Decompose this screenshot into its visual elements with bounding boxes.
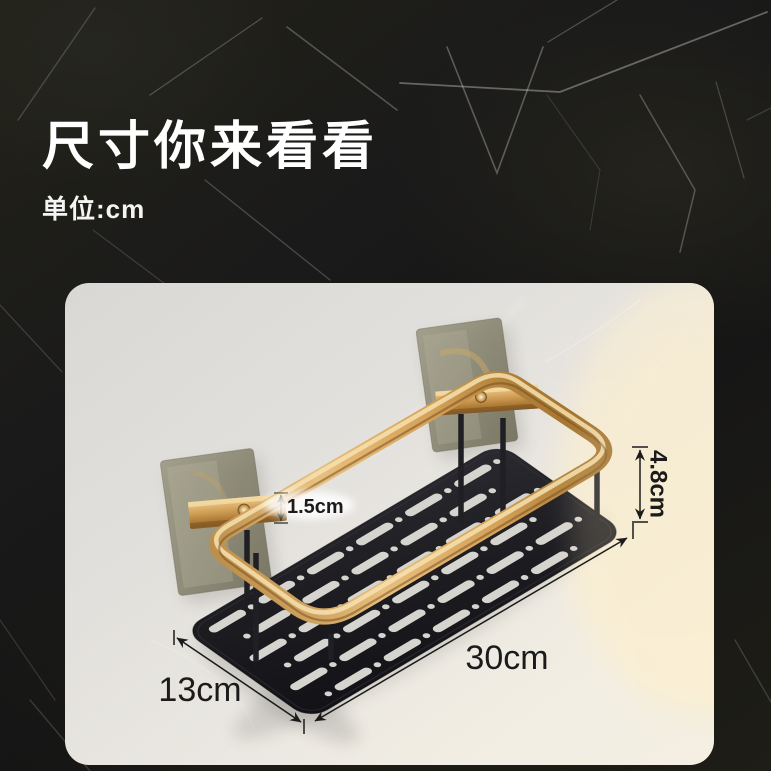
dimension-label-length: 30cm [465, 639, 548, 677]
dimension-label-depth: 13cm [158, 671, 241, 709]
dimension-label-height: 4.8cm [645, 450, 672, 518]
product-dimension-poster: 尺寸你来看看 单位:cm [0, 0, 771, 771]
dimension-label-thickness: 1.5cm [287, 496, 344, 518]
product-photo-card: 30cm 13cm 4.8cm 1.5cm [0, 0, 771, 771]
